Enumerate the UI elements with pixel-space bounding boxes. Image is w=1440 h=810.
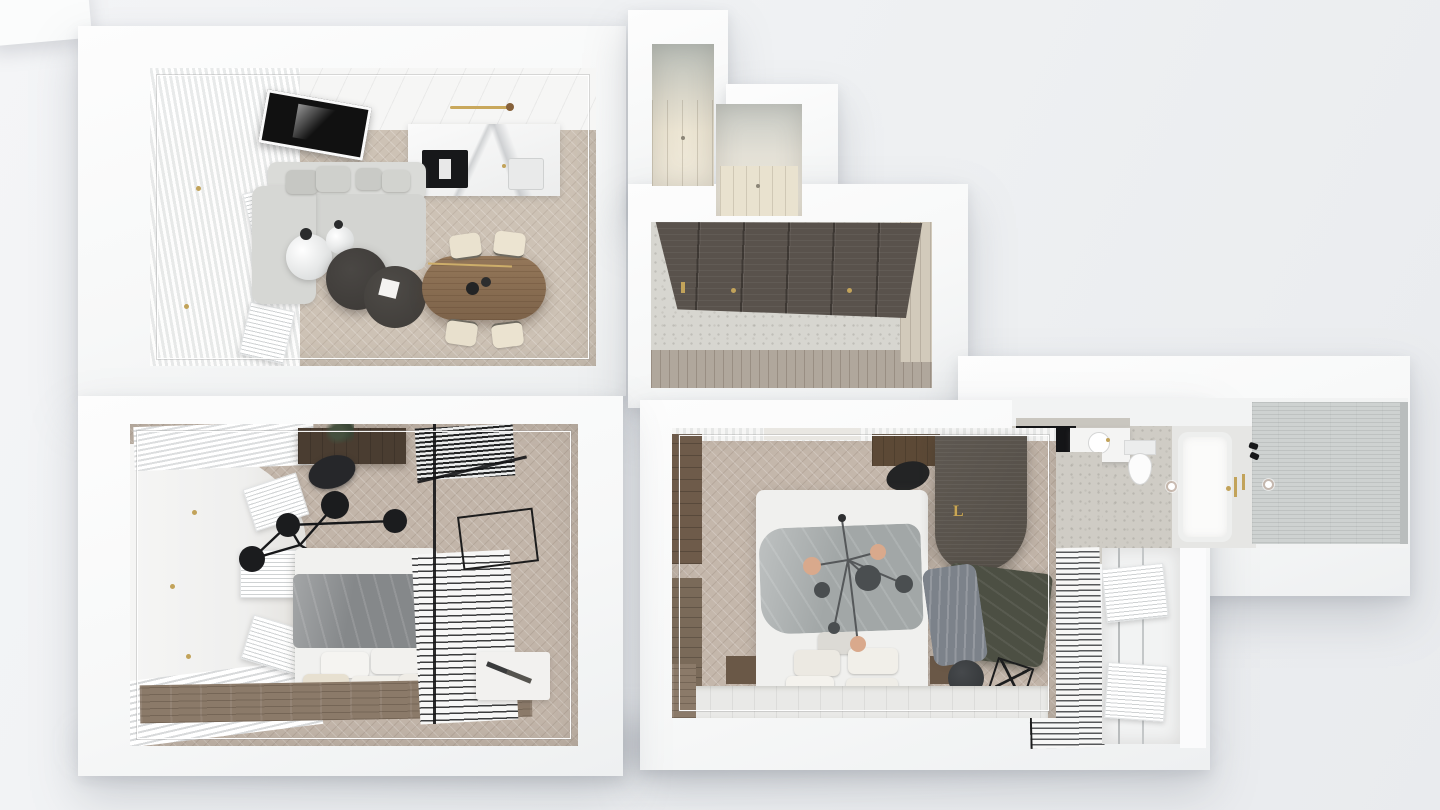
hall-wood-strip bbox=[651, 350, 932, 388]
cooktop-card bbox=[439, 159, 451, 179]
floor-spotlight bbox=[1168, 483, 1175, 490]
radiator bbox=[1102, 563, 1169, 623]
sofa-pillow bbox=[316, 166, 350, 192]
shower-door-handle bbox=[1242, 474, 1245, 490]
bedroom-one bbox=[130, 424, 578, 746]
closet-knob bbox=[756, 184, 760, 188]
radiator bbox=[1104, 662, 1168, 722]
tub-drain bbox=[1226, 486, 1231, 491]
rail-light-cap bbox=[506, 103, 514, 111]
shower-edge-shade bbox=[1400, 402, 1408, 544]
area-rug bbox=[688, 686, 1048, 718]
bathtub bbox=[1178, 432, 1232, 542]
lamp-cap bbox=[334, 220, 343, 229]
sofa-pillow bbox=[356, 168, 382, 190]
window-handle bbox=[184, 304, 189, 309]
tub-faucet-gold bbox=[1234, 477, 1237, 497]
table-bowl bbox=[481, 277, 491, 287]
shower-tiled-floor bbox=[1252, 402, 1408, 544]
cooktop bbox=[422, 150, 468, 188]
brand-monogram: L bbox=[953, 504, 964, 520]
wardrobe-knob bbox=[847, 288, 852, 293]
vanity-sink bbox=[1088, 432, 1110, 454]
entry-hall bbox=[651, 222, 932, 388]
closet-two bbox=[716, 104, 802, 216]
dining-chair bbox=[491, 320, 525, 349]
kitchen-sink bbox=[508, 158, 544, 190]
dining-chair bbox=[444, 318, 478, 347]
closet-one bbox=[652, 44, 714, 186]
closet-knob bbox=[681, 136, 685, 140]
vanity-tap bbox=[1106, 438, 1110, 442]
sofa-pillow bbox=[382, 170, 410, 192]
wardrobe-knob bbox=[731, 288, 736, 293]
shoes bbox=[506, 669, 532, 683]
table-bowl bbox=[466, 282, 479, 295]
feature-wall-dark bbox=[935, 436, 1027, 572]
bedroom-two: L bbox=[672, 428, 1056, 718]
floor-plan-render: L bbox=[0, 0, 1440, 810]
window-handle bbox=[196, 186, 201, 191]
bed-pillow bbox=[371, 648, 421, 674]
window-sill-band bbox=[1180, 548, 1206, 748]
corner-planks bbox=[672, 664, 696, 718]
dining-chair bbox=[448, 232, 482, 261]
hall-dark-wardrobe bbox=[653, 222, 925, 318]
partition-frame bbox=[433, 424, 436, 724]
lamp-cap bbox=[300, 228, 312, 240]
hall-door-handle bbox=[681, 282, 685, 293]
kitchen-rail-light bbox=[450, 106, 510, 109]
sink-tap bbox=[502, 164, 506, 168]
closet-wardrobe-front bbox=[720, 166, 798, 216]
window-bay-right bbox=[1102, 548, 1180, 744]
shoe-cabinet bbox=[476, 652, 550, 700]
floor-spotlight bbox=[1265, 481, 1272, 488]
artwork-highlight bbox=[293, 104, 338, 144]
dining-chair bbox=[493, 230, 527, 259]
closet-door-seams bbox=[652, 100, 714, 186]
sofa-pillow bbox=[286, 170, 318, 194]
living-room bbox=[150, 68, 596, 366]
glass-frame-box bbox=[457, 508, 539, 571]
